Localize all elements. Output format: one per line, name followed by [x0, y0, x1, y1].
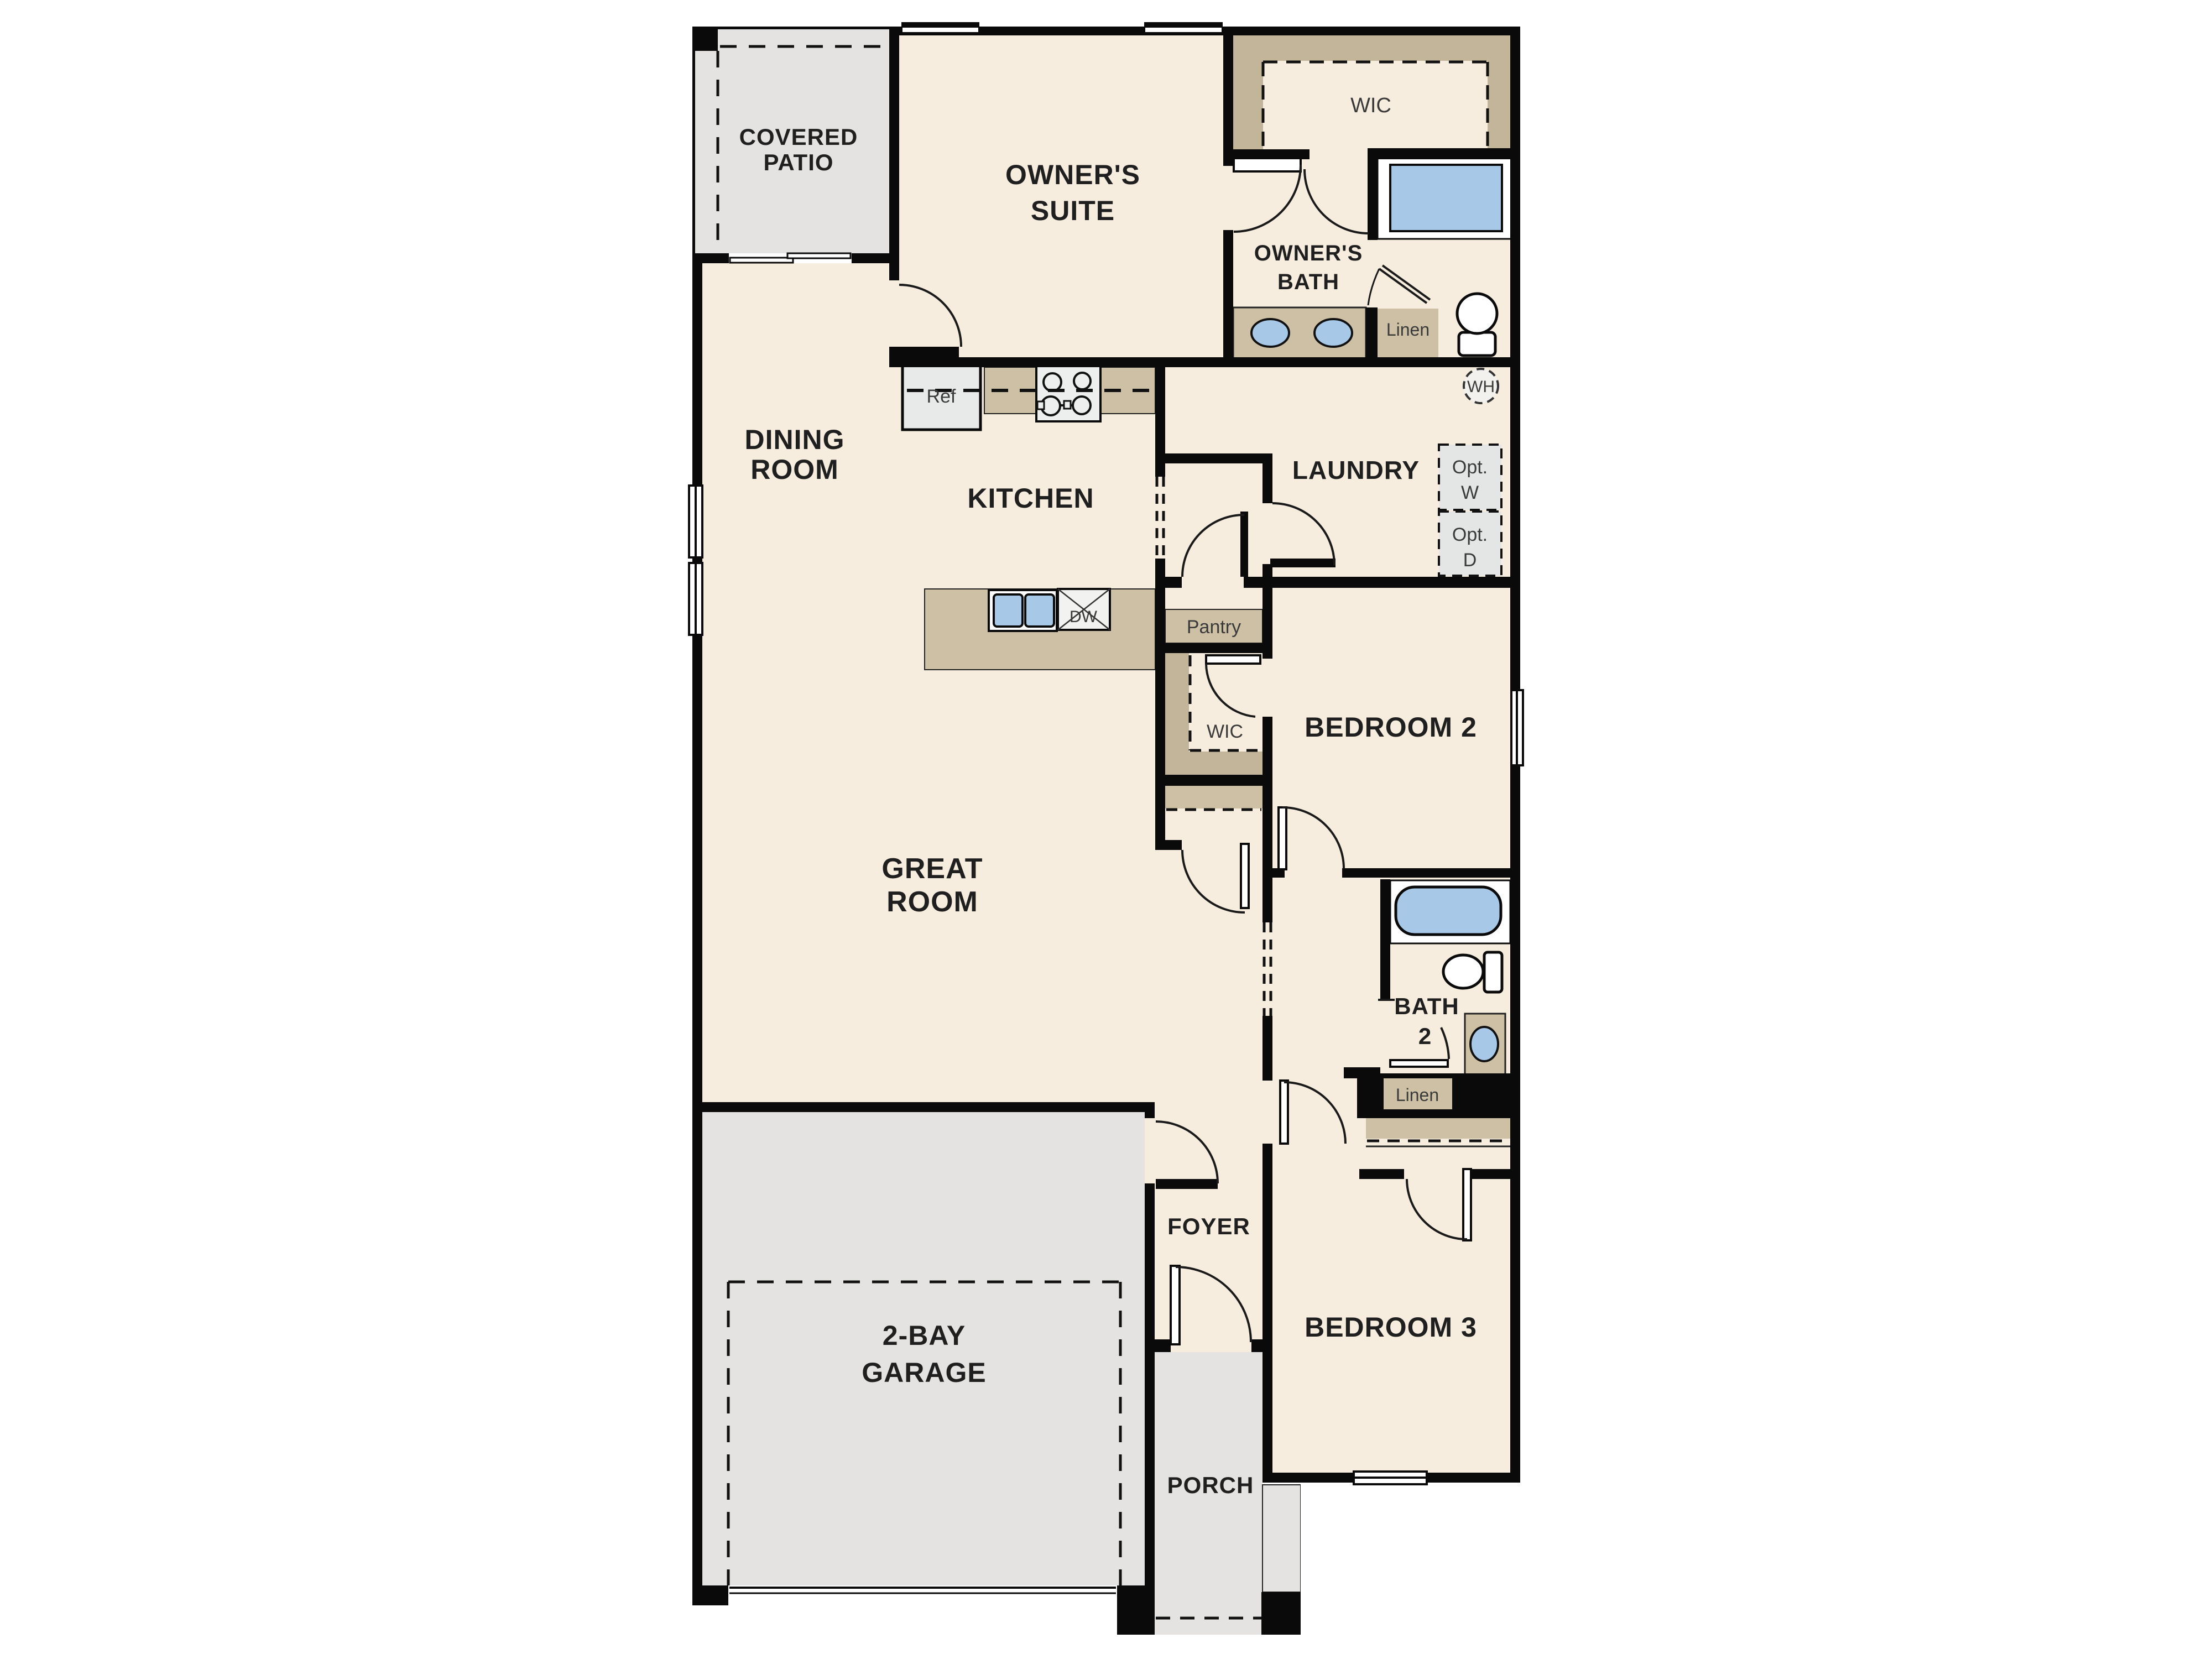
- svg-text:2: 2: [1418, 1023, 1432, 1049]
- svg-text:OWNER'S: OWNER'S: [1254, 241, 1363, 265]
- svg-text:GARAGE: GARAGE: [862, 1357, 986, 1388]
- svg-text:DINING: DINING: [745, 424, 845, 455]
- svg-text:Linen: Linen: [1396, 1085, 1439, 1105]
- svg-text:LAUNDRY: LAUNDRY: [1292, 456, 1420, 484]
- svg-text:OWNER'S: OWNER'S: [1005, 159, 1140, 190]
- svg-text:SUITE: SUITE: [1031, 195, 1115, 226]
- svg-text:PORCH: PORCH: [1167, 1472, 1254, 1498]
- svg-text:Opt.: Opt.: [1452, 524, 1488, 545]
- svg-text:WH: WH: [1467, 378, 1495, 396]
- svg-text:W: W: [1461, 482, 1479, 503]
- svg-text:WIC: WIC: [1350, 94, 1391, 117]
- svg-text:BEDROOM 3: BEDROOM 3: [1305, 1312, 1477, 1343]
- svg-text:DW: DW: [1070, 608, 1098, 626]
- svg-text:Opt.: Opt.: [1452, 457, 1488, 478]
- svg-text:FOYER: FOYER: [1167, 1213, 1250, 1239]
- svg-text:D: D: [1463, 550, 1477, 571]
- svg-text:Linen: Linen: [1386, 320, 1430, 340]
- svg-text:KITCHEN: KITCHEN: [967, 483, 1094, 514]
- svg-text:GREAT: GREAT: [881, 853, 983, 885]
- svg-text:BATH: BATH: [1394, 993, 1459, 1019]
- svg-text:Pantry: Pantry: [1187, 617, 1241, 638]
- svg-text:COVERED: COVERED: [739, 124, 858, 150]
- svg-text:Ref: Ref: [927, 386, 956, 407]
- svg-text:BATH: BATH: [1277, 270, 1339, 294]
- svg-text:ROOM: ROOM: [886, 886, 978, 918]
- svg-text:WIC: WIC: [1207, 721, 1243, 742]
- svg-text:PATIO: PATIO: [763, 149, 833, 175]
- svg-text:BEDROOM 2: BEDROOM 2: [1305, 712, 1477, 743]
- svg-text:ROOM: ROOM: [750, 454, 839, 485]
- svg-text:2-BAY: 2-BAY: [883, 1320, 966, 1351]
